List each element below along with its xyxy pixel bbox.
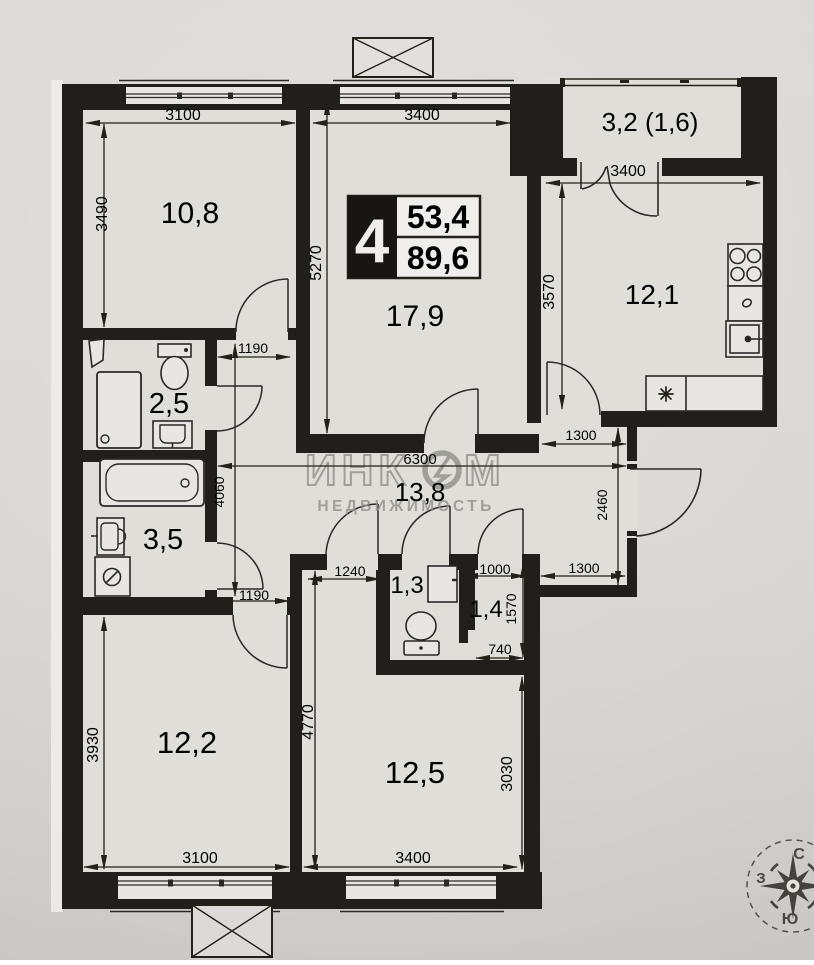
svg-text:3030: 3030 — [499, 756, 516, 792]
svg-text:2460: 2460 — [594, 489, 610, 520]
svg-text:12,1: 12,1 — [625, 279, 680, 310]
svg-text:3,5: 3,5 — [143, 524, 183, 556]
svg-text:3930: 3930 — [85, 727, 102, 763]
svg-text:13,8: 13,8 — [395, 477, 446, 507]
svg-text:3400: 3400 — [610, 163, 646, 180]
svg-text:10,8: 10,8 — [161, 197, 219, 230]
svg-text:1240: 1240 — [334, 563, 365, 579]
svg-text:3,2 (1,6): 3,2 (1,6) — [602, 107, 699, 137]
svg-text:3490: 3490 — [94, 196, 111, 232]
svg-text:1300: 1300 — [568, 560, 599, 576]
svg-text:12,2: 12,2 — [157, 725, 217, 760]
svg-text:4770: 4770 — [300, 704, 317, 740]
svg-text:53,4: 53,4 — [407, 199, 469, 235]
svg-text:4060: 4060 — [211, 476, 227, 507]
svg-text:6300: 6300 — [403, 451, 436, 468]
svg-text:1000: 1000 — [479, 561, 510, 577]
svg-text:12,5: 12,5 — [385, 755, 445, 790]
svg-text:3570: 3570 — [541, 274, 558, 310]
svg-text:89,6: 89,6 — [407, 240, 469, 276]
svg-text:740: 740 — [488, 641, 512, 657]
svg-text:4: 4 — [355, 207, 390, 276]
svg-text:М: М — [464, 446, 501, 495]
svg-text:1300: 1300 — [565, 427, 596, 443]
svg-text:3400: 3400 — [395, 850, 431, 867]
svg-text:5270: 5270 — [308, 245, 325, 281]
svg-text:1,4: 1,4 — [469, 596, 502, 623]
svg-text:1190: 1190 — [239, 587, 269, 603]
svg-text:С: С — [793, 846, 805, 863]
svg-text:3100: 3100 — [182, 850, 218, 867]
svg-text:17,9: 17,9 — [386, 300, 444, 333]
svg-text:1570: 1570 — [503, 593, 519, 624]
svg-text:З: З — [756, 870, 765, 887]
svg-text:3100: 3100 — [165, 107, 201, 124]
svg-text:3400: 3400 — [404, 107, 440, 124]
svg-text:2,5: 2,5 — [149, 388, 189, 420]
svg-text:Ю: Ю — [782, 911, 799, 928]
svg-text:1,3: 1,3 — [390, 572, 423, 599]
svg-text:1190: 1190 — [238, 340, 268, 356]
